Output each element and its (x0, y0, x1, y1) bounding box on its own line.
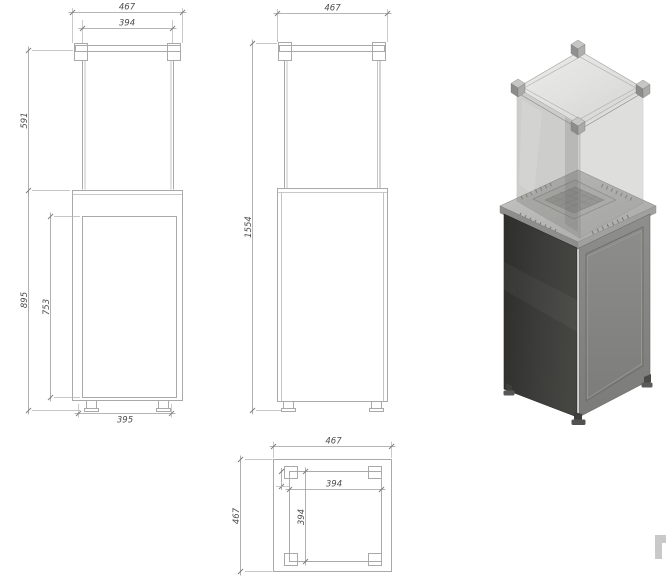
dim-front-overall-width: 467 (119, 3, 136, 13)
dim-front-door-height: 753 (42, 299, 52, 315)
dim-side-overall-height: 1554 (244, 216, 254, 238)
drawing-svg: 467 394 591 895 753 (0, 0, 667, 576)
dim-front-base-height: 895 (20, 292, 30, 308)
glass-shadow-streak (565, 117, 578, 232)
product-render (500, 40, 656, 425)
dim-plan-glass-width: 394 (326, 480, 342, 490)
pedestal-side-face (579, 214, 650, 417)
side-view: 467 1554 (244, 4, 392, 415)
plan-dim-overall-width: 467 (270, 437, 396, 459)
plan-corner-post-bl (285, 554, 298, 566)
front-dim-glass-width: 394 (79, 19, 177, 44)
front-dim-foot-spacing: 395 (75, 404, 176, 426)
plan-view-geometry (274, 460, 392, 572)
front-view-geometry (73, 44, 183, 412)
front-view: 467 394 591 895 753 (20, 3, 187, 426)
dim-front-glass-width: 394 (119, 19, 135, 29)
side-view-geometry (278, 43, 388, 412)
dim-plan-overall-width: 467 (325, 437, 342, 447)
side-foot-right (372, 402, 382, 409)
side-base-cabinet (278, 189, 388, 402)
plan-corner-post-br (369, 554, 382, 566)
front-base-cabinet (73, 191, 183, 401)
front-foot-right (159, 401, 169, 409)
plan-view: 467 467 394 394 (232, 437, 396, 576)
front-dim-door-height: 753 (42, 213, 80, 402)
plan-dim-glass-depth: 394 (297, 468, 308, 566)
dim-plan-overall-depth: 467 (232, 507, 242, 524)
dim-plan-glass-depth: 394 (297, 509, 307, 525)
watermark-gamma-fragment (655, 535, 666, 559)
plan-corner-post-tl (285, 467, 298, 479)
dim-front-glass-height: 591 (20, 112, 30, 128)
side-dim-overall-depth: 467 (274, 4, 392, 43)
plan-dim-overall-depth: 467 (232, 456, 273, 576)
technical-drawing-sheet: 467 394 591 895 753 (0, 0, 667, 576)
plan-corner-post-tr (369, 467, 382, 479)
front-foot-left (87, 401, 97, 409)
side-foot-left (284, 402, 294, 409)
dim-side-overall-depth: 467 (324, 4, 341, 14)
front-door-panel (83, 217, 177, 398)
dim-front-foot-spacing: 395 (117, 416, 133, 426)
side-dim-overall-height: 1554 (244, 40, 281, 415)
plan-outer-square (274, 460, 392, 572)
front-dim-glass-height: 591 (20, 47, 73, 195)
